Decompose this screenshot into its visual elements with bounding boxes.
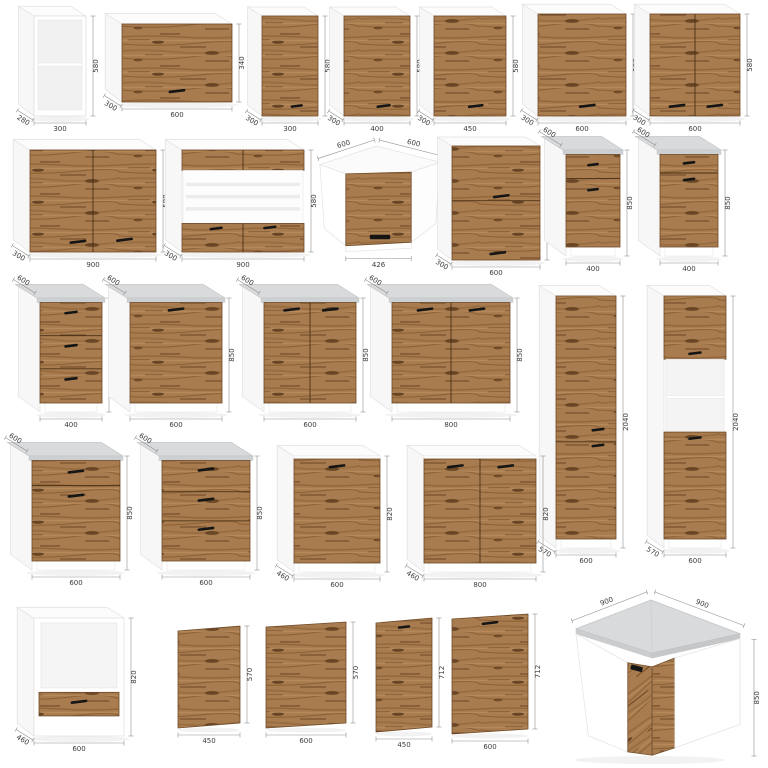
dim-label: 600 (169, 421, 182, 429)
dim-label: 450 (202, 737, 215, 745)
dim-label: 600 (688, 125, 701, 133)
cabinet-wall-450x580: 580450300 (416, 7, 520, 133)
cabinet-oven-housing-600: 820600460 (15, 608, 138, 754)
dim-label: 300 (416, 114, 432, 128)
dim-label: 600 (303, 421, 316, 429)
dim-label: 850 (126, 506, 134, 519)
dim-label: 580 (92, 59, 100, 72)
dim-label: 400 (586, 265, 599, 273)
dim-label: 600 (69, 579, 82, 587)
dim-label: 460 (405, 569, 421, 583)
dim-label: 600 (688, 557, 701, 565)
door-front (538, 14, 626, 116)
dim-label: 820 (386, 507, 394, 520)
cabinet-base-600-1door: 600850600 (102, 274, 236, 429)
cabinet-wall-300x580: 580300300 (244, 7, 332, 133)
cabinet-tall-oven-600x2040: 2040600570 (645, 286, 740, 566)
door-front (130, 303, 222, 404)
dim-label: 460 (15, 733, 31, 747)
dim-label: 850 (724, 196, 732, 209)
door-front (556, 296, 616, 539)
cabinet-wall-600x580: 580600300 (519, 4, 640, 133)
door-front (162, 461, 250, 562)
dim-label: 580 (746, 58, 754, 71)
dim-label: 570 (645, 545, 661, 559)
dim-label: 340 (238, 56, 246, 69)
dim-label: 600 (575, 125, 588, 133)
cabinet-catalog-sheet: 5803002803406003005803003005804003005804… (0, 0, 768, 768)
dim-label: 850 (228, 348, 236, 361)
front-panel-450x570: 570450 (178, 626, 254, 745)
dim-label: 300 (103, 99, 119, 113)
dim-label: 426 (372, 261, 386, 269)
dim-label: 450 (463, 125, 476, 133)
dim-label: 900 (236, 261, 249, 269)
dim-label: 300 (519, 113, 535, 127)
dim-label: 2040 (732, 413, 740, 431)
dim-label: 400 (682, 265, 695, 273)
dim-label: 300 (11, 249, 27, 263)
door-front (178, 626, 240, 728)
cabinet-base-600-3drawers: 600850600 (134, 432, 264, 587)
dim-label: 850 (362, 348, 370, 361)
dim-label: 600 (483, 743, 496, 751)
dim-label: 600 (579, 557, 592, 565)
cabinet-wall-900x580-2door: 580900300 (11, 140, 170, 270)
cabinet-wall-flip-600x340: 340600300 (103, 14, 246, 120)
handle-icon (370, 235, 390, 240)
cabinet-base-600-drawer-door: 600850600 (4, 432, 134, 587)
dim-label: 280 (15, 113, 31, 127)
dim-label: 600 (406, 138, 421, 149)
dim-label: 600 (299, 737, 312, 745)
door-front (660, 155, 718, 248)
cabinet-base-400-drawer-door-a: 600850400 (538, 126, 634, 273)
dim-label: 2040 (622, 413, 630, 431)
cabinet-wall-corner-600x600: 600600580426 (317, 138, 455, 269)
dim-label: 300 (53, 125, 66, 133)
dim-label: 450 (397, 741, 410, 749)
cabinet-wall-400x580: 580400300 (326, 7, 424, 133)
dim-label: 570 (352, 666, 360, 679)
cabinet-wall-600x720-2door: 720600300 (434, 137, 554, 277)
dim-label: 820 (542, 507, 550, 520)
door-front (266, 622, 346, 728)
door-front (452, 146, 540, 260)
appliance-front-450x712: 712450 (376, 618, 446, 749)
dim-label: 300 (283, 125, 296, 133)
dim-label: 900 (695, 598, 710, 610)
dim-label: 820 (130, 670, 138, 683)
dim-label: 600 (170, 111, 183, 119)
front-panel-600x570: 570600 (266, 622, 360, 745)
dim-label: 300 (244, 114, 260, 128)
cabinet-base-600-1door-low: 820600460 (275, 446, 394, 590)
door-front (262, 16, 318, 116)
door-front (344, 16, 410, 116)
door-front (652, 658, 675, 755)
dim-label: 600 (199, 579, 212, 587)
dim-label: 850 (516, 348, 524, 361)
appliance-front-600x712: 712600 (452, 614, 542, 751)
cabinet-base-600-2door: 600850600 (236, 274, 370, 429)
door-front (346, 172, 411, 246)
door-front (376, 618, 432, 732)
door-front (566, 155, 620, 248)
cabinet-base-400-drawer-door-b: 600850400 (632, 126, 732, 273)
dim-label: 900 (86, 261, 99, 269)
dim-label: 850 (753, 691, 761, 704)
door-front (434, 16, 506, 116)
door-front (664, 432, 726, 539)
dim-label: 300 (326, 114, 342, 128)
dim-label: 580 (310, 194, 318, 207)
dim-label: 400 (64, 421, 77, 429)
door-front (628, 663, 652, 755)
cabinet-wall-600x580-2door: 580600300 (631, 4, 754, 133)
cabinet-base-800-2door: 600850800 (364, 274, 524, 429)
catalog-canvas: 5803002803406003005803003005804003005804… (0, 0, 768, 768)
door-front (39, 692, 119, 716)
dim-label: 712 (534, 665, 542, 678)
dim-label: 600 (489, 269, 502, 277)
cabinet-corner-base-900x900: 900900850 (571, 590, 761, 764)
dim-label: 600 (72, 745, 85, 753)
dim-label: 400 (370, 125, 383, 133)
dim-label: 712 (438, 666, 446, 679)
cabinet-wall-900x580-glass: 580900300 (163, 140, 318, 270)
cabinet-wall-open-300: 580300280 (15, 6, 100, 133)
door-front (294, 459, 380, 563)
dim-label: 580 (512, 59, 520, 72)
cabinet-base-400-3drawers: 600850400 (12, 274, 116, 429)
dim-label: 850 (256, 506, 264, 519)
door-front (32, 461, 120, 562)
door-front (664, 296, 726, 359)
dim-label: 600 (330, 581, 343, 589)
dim-label: 800 (473, 581, 486, 589)
door-front (452, 614, 528, 734)
dim-label: 850 (626, 196, 634, 209)
dim-label: 460 (275, 569, 291, 583)
dim-label: 570 (537, 545, 553, 559)
cabinet-tall-pantry-600x2040: 2040600570 (537, 286, 630, 566)
dim-label: 300 (163, 249, 179, 263)
cabinet-base-800-2door-low: 820800460 (405, 446, 550, 590)
dim-label: 800 (444, 421, 457, 429)
door-front (40, 303, 102, 404)
dim-label: 570 (246, 668, 254, 681)
dim-label: 900 (599, 595, 614, 607)
dim-label: 300 (434, 258, 450, 272)
